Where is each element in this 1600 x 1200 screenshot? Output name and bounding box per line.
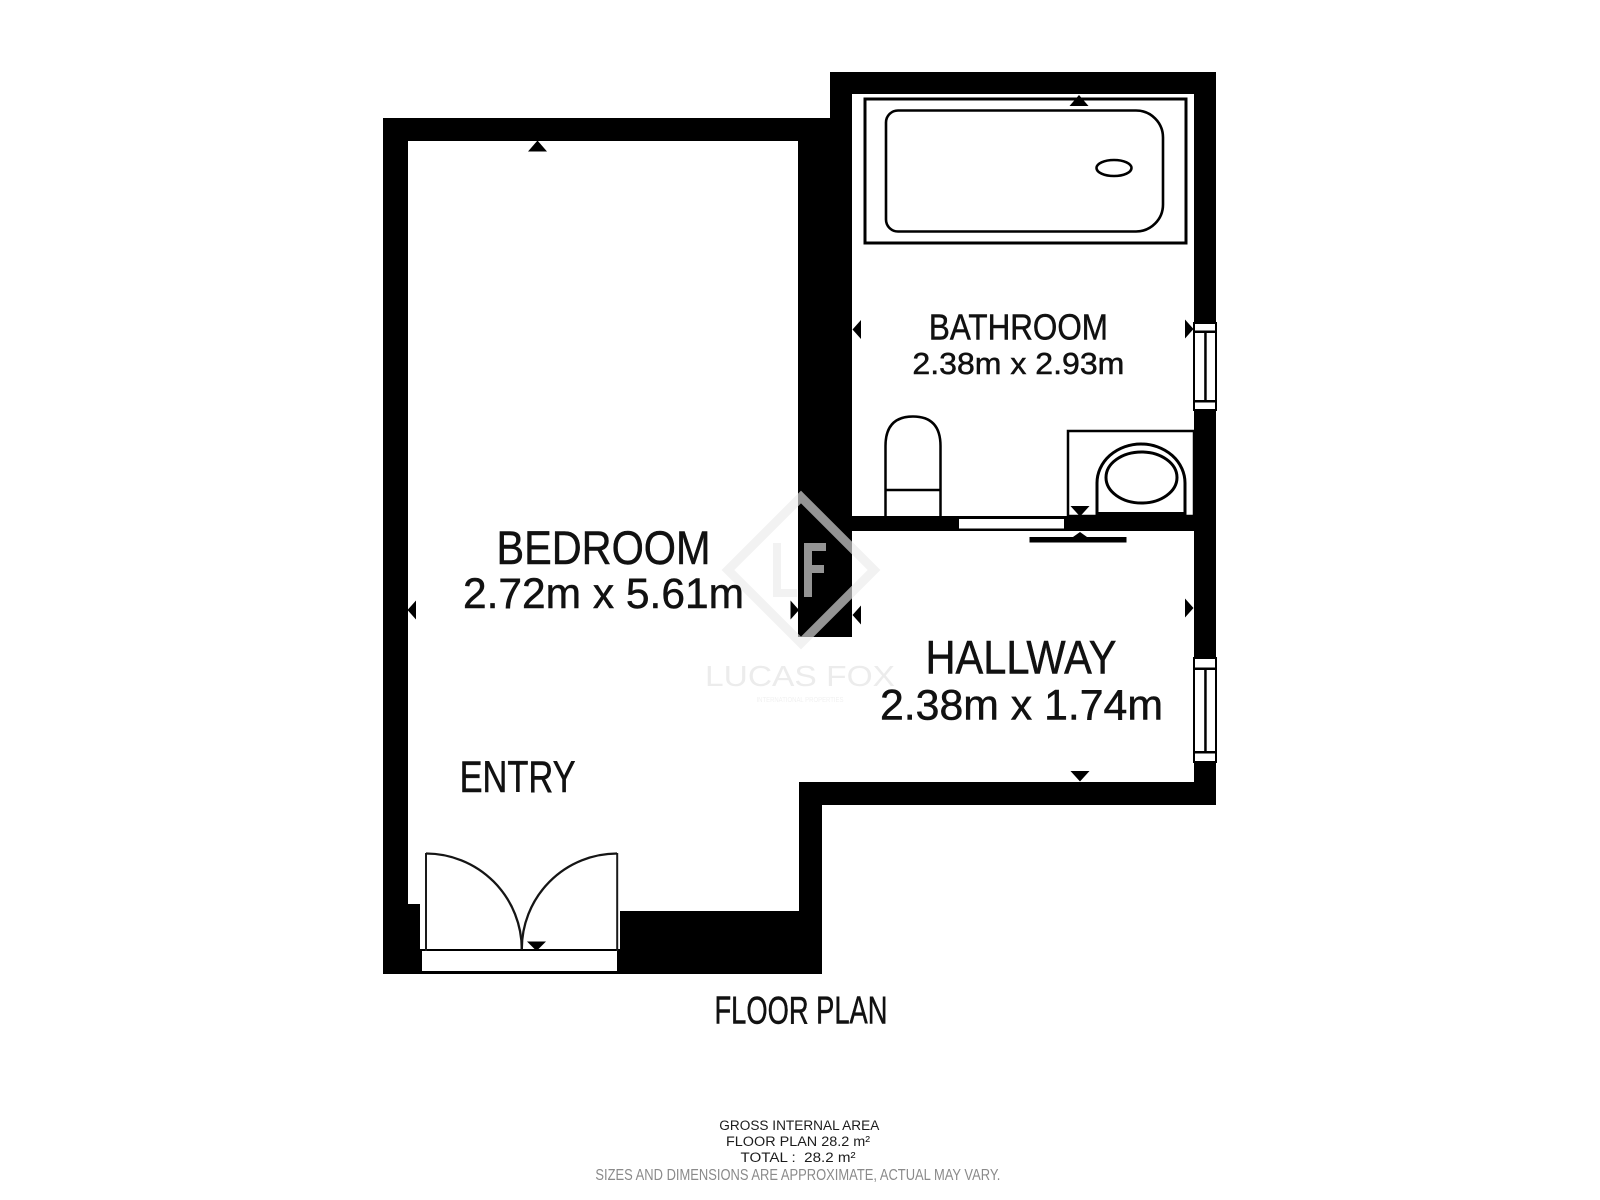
svg-text:2.38m x 1.74m: 2.38m x 1.74m (880, 682, 1163, 730)
svg-text:2.72m x 5.61m: 2.72m x 5.61m (463, 570, 744, 618)
svg-text:SIZES AND DIMENSIONS ARE APPRO: SIZES AND DIMENSIONS ARE APPROXIMATE, AC… (595, 1167, 1000, 1184)
svg-text:TOTAL : 28.2 m²: TOTAL : 28.2 m² (741, 1150, 856, 1166)
svg-text:LUCAS FOX: LUCAS FOX (705, 661, 895, 693)
svg-text:FLOOR PLAN 28.2 m²: FLOOR PLAN 28.2 m² (726, 1134, 870, 1150)
svg-text:ENTRY: ENTRY (460, 753, 576, 802)
svg-text:FLOOR PLAN: FLOOR PLAN (715, 990, 888, 1033)
svg-text:BEDROOM: BEDROOM (497, 522, 711, 575)
svg-text:HALLWAY: HALLWAY (926, 632, 1117, 685)
svg-text:GROSS INTERNAL AREA: GROSS INTERNAL AREA (719, 1118, 880, 1134)
svg-text:BATHROOM: BATHROOM (929, 308, 1108, 348)
svg-text:INTERNATIONAL PROPERTIES: INTERNATIONAL PROPERTIES (757, 695, 844, 704)
svg-text:2.38m x 2.93m: 2.38m x 2.93m (912, 346, 1124, 381)
